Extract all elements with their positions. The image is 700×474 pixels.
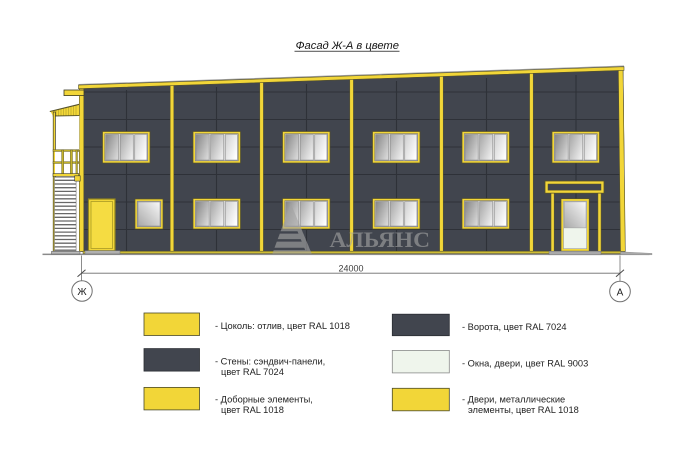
svg-text:- Доборные элементы,: - Доборные элементы, xyxy=(215,395,313,405)
svg-text:24000: 24000 xyxy=(338,264,363,274)
svg-text:Фасад Ж-А в цвете: Фасад Ж-А в цвете xyxy=(296,40,399,52)
svg-text:элементы, цвет RAL 1018: элементы, цвет RAL 1018 xyxy=(468,405,579,415)
svg-text:- Ворота, цвет RAL 7024: - Ворота, цвет RAL 7024 xyxy=(462,322,567,332)
svg-text:цвет RAL 1018: цвет RAL 1018 xyxy=(221,405,284,415)
svg-text:АЛЬЯНС: АЛЬЯНС xyxy=(330,227,431,252)
svg-text:- Цоколь: отлив, цвет RAL 1018: - Цоколь: отлив, цвет RAL 1018 xyxy=(215,321,350,331)
svg-text:А: А xyxy=(617,287,624,298)
svg-text:- Двери, металлические: - Двери, металлические xyxy=(462,395,565,405)
svg-text:Ж: Ж xyxy=(77,287,87,298)
svg-text:- Окна, двери, цвет RAL 9003: - Окна, двери, цвет RAL 9003 xyxy=(462,358,588,368)
svg-text:цвет RAL 7024: цвет RAL 7024 xyxy=(221,367,284,377)
svg-text:- Стены: сэндвич-панели,: - Стены: сэндвич-панели, xyxy=(215,357,325,367)
